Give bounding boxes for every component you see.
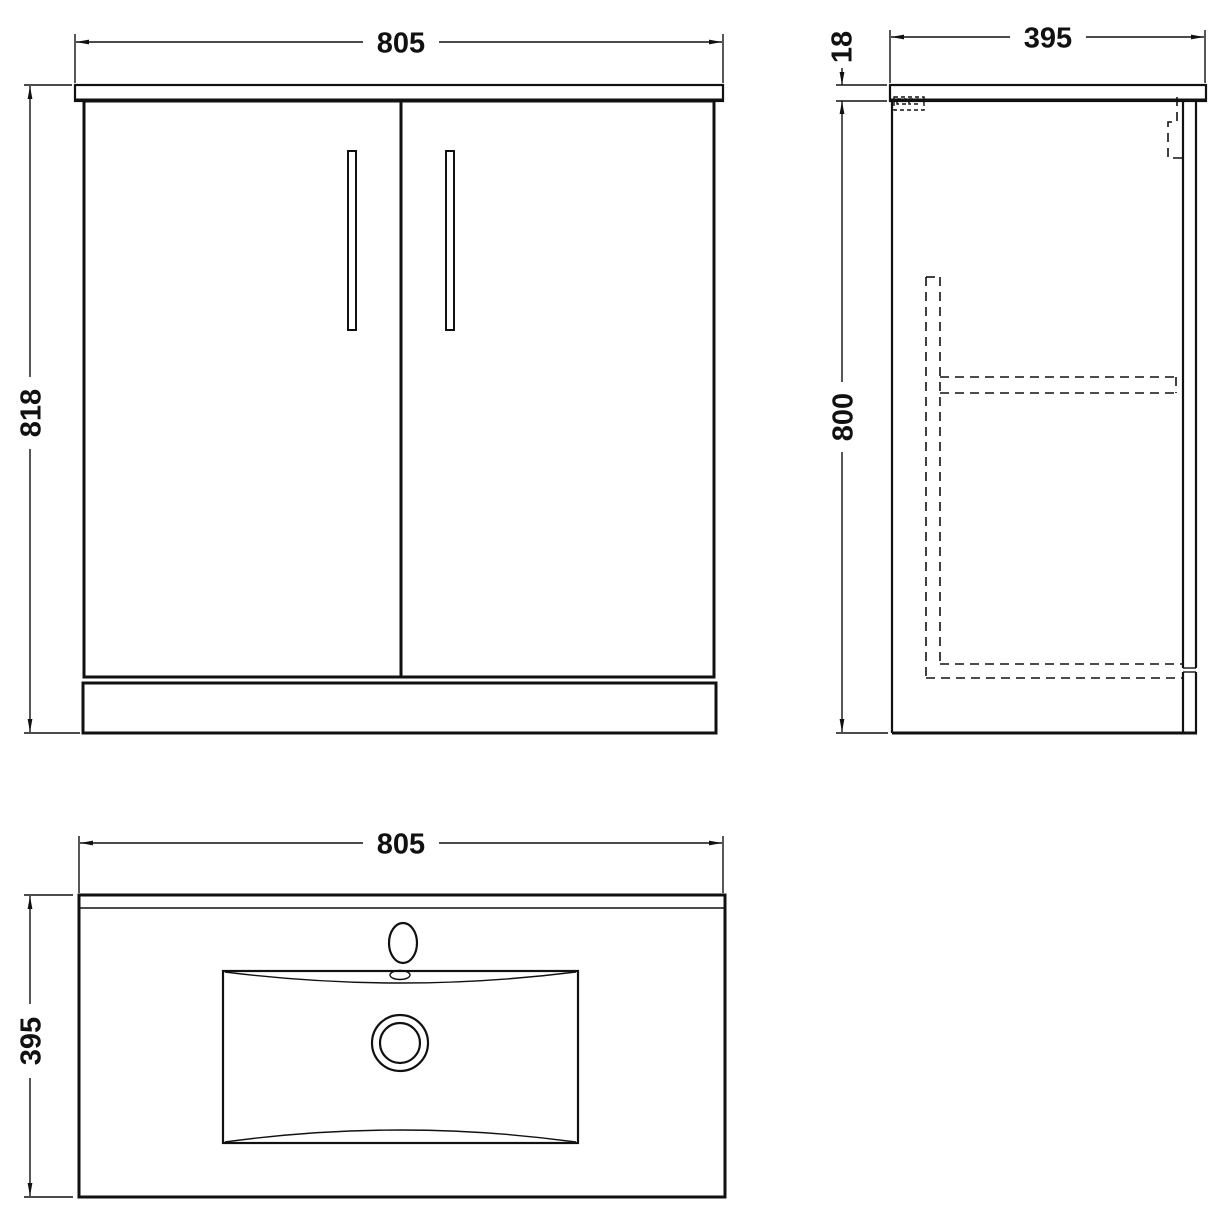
side-view: 18 395 800	[826, 22, 1206, 733]
technical-drawing-canvas: 805 818	[0, 0, 1224, 1224]
plan-worktop	[79, 895, 725, 1197]
tap-hole	[389, 923, 417, 963]
basin-front-curve	[225, 972, 576, 983]
basin	[223, 971, 578, 1144]
front-view: 805 818	[15, 27, 723, 733]
front-height-dimension: 818	[15, 85, 80, 733]
side-shelf-hidden	[940, 377, 1176, 393]
side-bottom-panel-hidden	[926, 664, 1183, 678]
plan-width-label: 805	[377, 828, 425, 860]
front-plinth	[83, 683, 716, 733]
side-depth-dimension: 395	[890, 22, 1205, 83]
front-cabinet-body	[84, 101, 714, 677]
plan-depth-dimension: 395	[15, 895, 73, 1197]
basin-back-curve	[225, 1130, 576, 1142]
side-internal-upright-hidden	[926, 277, 940, 678]
side-worktop-thickness-dimension: 18	[826, 31, 887, 101]
front-width-dimension: 805	[75, 27, 723, 83]
side-hinge-hidden	[1168, 97, 1183, 158]
door-handle-left	[348, 151, 356, 330]
plan-view: 805 395	[15, 828, 725, 1197]
basin-outline	[223, 971, 578, 1143]
side-height-dimension: 800	[827, 101, 888, 733]
side-height-label: 800	[827, 393, 859, 441]
side-worktop-thickness-label: 18	[826, 31, 858, 63]
plan-width-dimension: 805	[79, 828, 723, 893]
vanity-technical-drawing: 805 818	[0, 0, 1224, 1224]
side-depth-label: 395	[1024, 22, 1072, 54]
front-width-label: 805	[377, 27, 425, 59]
door-handle-right	[446, 151, 454, 330]
waste-hole-inner	[380, 1023, 420, 1063]
plan-depth-label: 395	[15, 1017, 47, 1065]
front-height-label: 818	[15, 389, 47, 437]
